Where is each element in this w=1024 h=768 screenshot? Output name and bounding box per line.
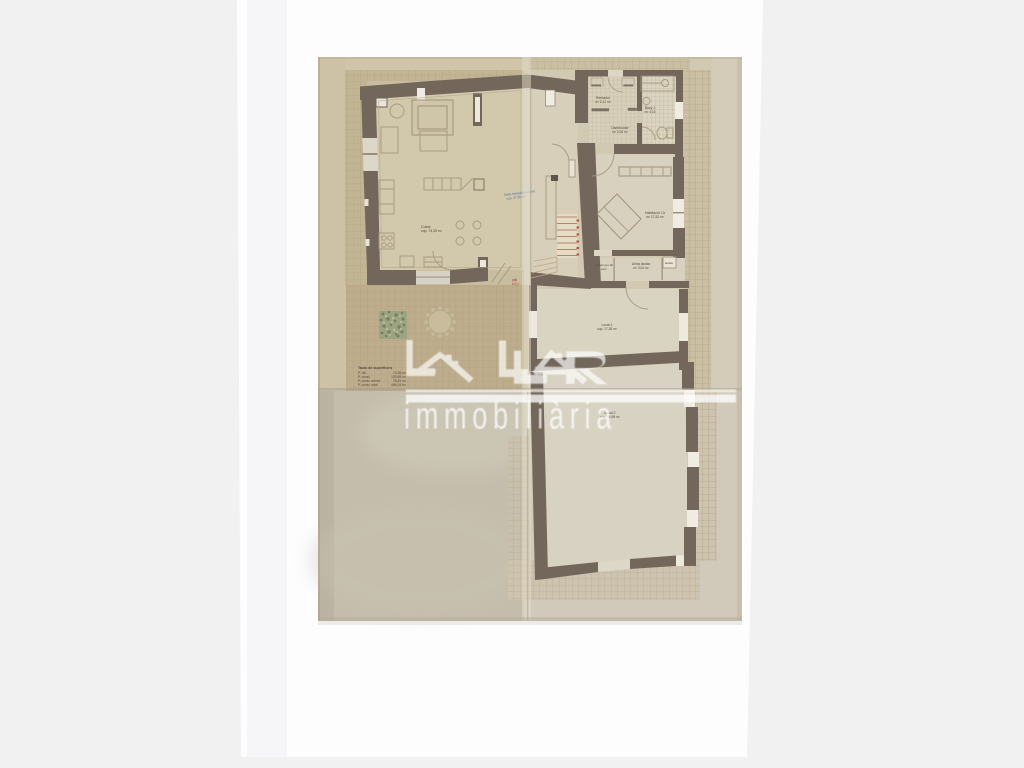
svg-text:m² 2,06 m²: m² 2,06 m² [612, 130, 627, 134]
svg-text:P. const. total: P. const. total [358, 383, 378, 387]
svg-text:s.9,1: s.9,1 [512, 282, 519, 286]
svg-text:sup. 17,38 m²: sup. 17,38 m² [597, 327, 617, 331]
svg-text:m² 4,15: m² 4,15 [645, 110, 656, 114]
svg-text:m² 3,04 m²: m² 3,04 m² [633, 266, 648, 270]
svg-text:469,19 m²: 469,19 m² [391, 383, 407, 387]
svg-text:immobiliària: immobiliària [404, 396, 617, 438]
svg-text:sup. 74,35 m²: sup. 74,35 m² [421, 229, 443, 233]
svg-text:lavabo: lavabo [665, 261, 674, 265]
svg-text:m² 2,41 m²: m² 2,41 m² [595, 100, 610, 104]
svg-text:Taula de superfícies: Taula de superfícies [358, 366, 392, 370]
svg-text:m² 17,52 m²: m² 17,52 m² [646, 215, 665, 219]
svg-text:escl.: escl. [601, 267, 607, 271]
